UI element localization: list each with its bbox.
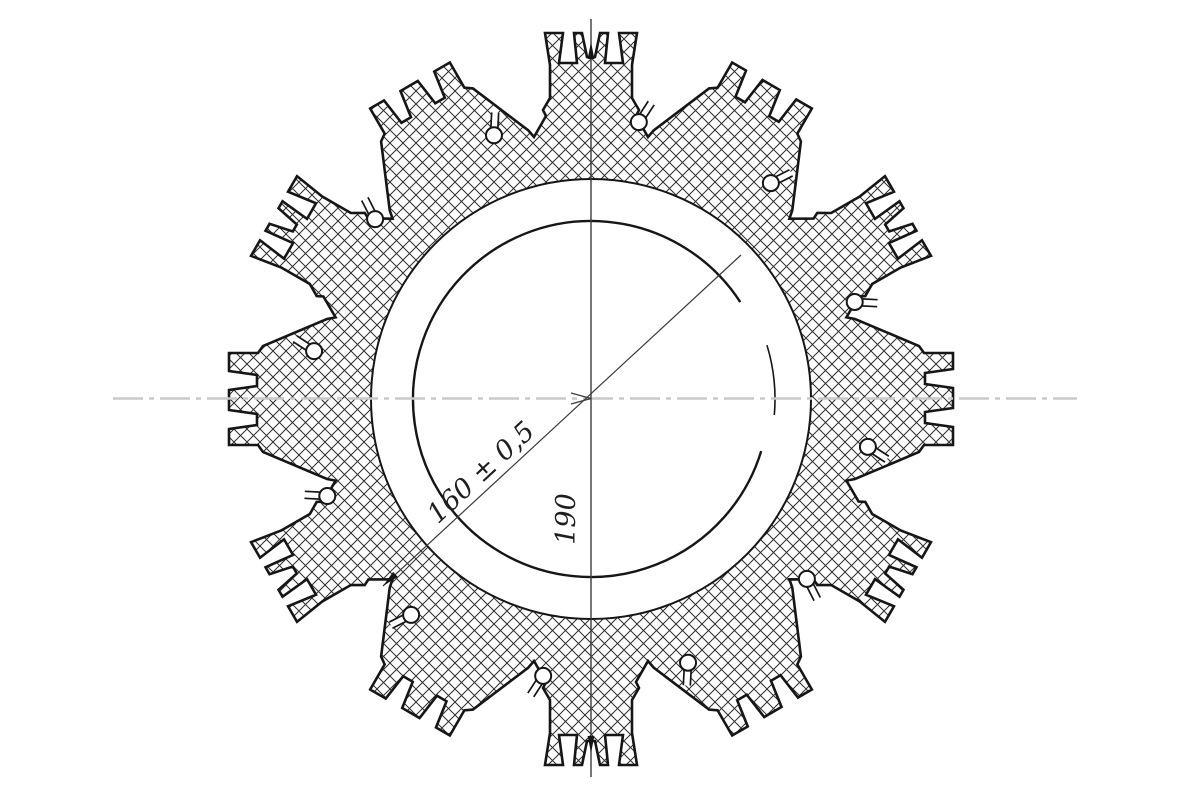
vertical-bottom-arrow <box>588 736 595 753</box>
drawing-sheet: 160 ± 0,5 190 <box>0 0 1200 800</box>
vertical-top-arrow <box>588 42 595 59</box>
dimension-label-outer-size: 190 <box>551 493 582 545</box>
gear-profile-drawing: 160 ± 0,5 190 <box>0 0 1200 800</box>
dimension-label-bore-diameter: 160 ± 0,5 <box>421 416 541 530</box>
